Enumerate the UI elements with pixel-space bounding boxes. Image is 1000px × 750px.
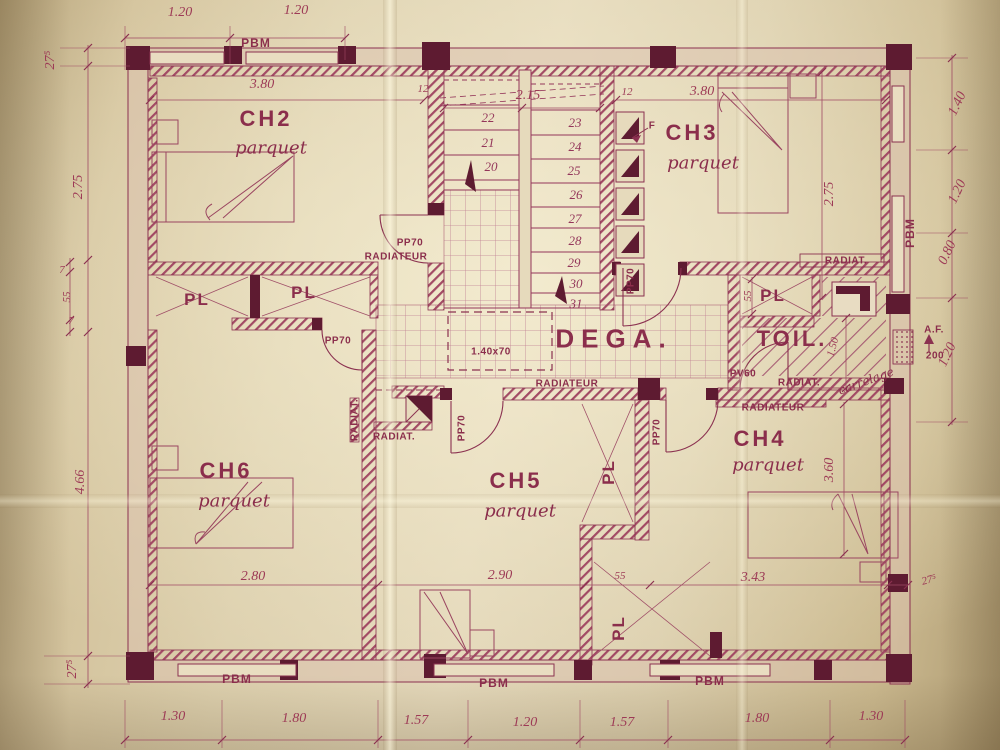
- dim-bot-130-b: 1.30: [859, 709, 884, 725]
- toil-floor-note: carrelage: [836, 364, 896, 397]
- tag-af-200: 200: [926, 351, 944, 362]
- dim-right-080: 0.80: [936, 239, 961, 268]
- room-ch4: CH4: [733, 426, 786, 452]
- dim-left-wall-275-b: 27⁵: [65, 660, 81, 679]
- stair-step-30: 30: [570, 276, 583, 292]
- dim-left-7b: 7: [68, 315, 74, 327]
- radiator-ch6-b: RADIAT.: [373, 432, 415, 443]
- room-ch4-floor: parquet: [732, 455, 804, 476]
- radiator-ch4: RADIATEUR: [742, 403, 805, 414]
- door-pp70-ch3: PP70: [626, 268, 637, 294]
- stair-step-25: 25: [568, 163, 581, 179]
- stair-step-29: 29: [568, 255, 581, 271]
- dim-ch5-290: 2.90: [488, 568, 513, 584]
- dim-ch3-380: 3.80: [690, 84, 715, 100]
- stair-step-28: 28: [569, 233, 582, 249]
- floor-plan-paper: 1.201.20PBM3.80122.15123.8027⁵2.7575574.…: [0, 0, 1000, 750]
- room-ch6-floor: parquet: [198, 491, 270, 512]
- dim-wall-275-c: 27⁵: [920, 572, 937, 587]
- stair-step-31: 31: [570, 296, 583, 312]
- dim-stair-215: 2.15: [516, 88, 541, 104]
- tag-pbm-top: PBM: [241, 36, 271, 50]
- room-ch5-floor: parquet: [484, 501, 556, 522]
- room-toil: TOIL.: [757, 326, 828, 352]
- dim-bot-180-b: 1.80: [745, 711, 770, 727]
- labels-layer: 1.201.20PBM3.80122.15123.8027⁵2.7575574.…: [0, 0, 1000, 750]
- dim-bot-180-a: 1.80: [282, 711, 307, 727]
- room-ch2: CH2: [239, 106, 292, 132]
- dim-top-120-a: 1.20: [168, 5, 193, 21]
- radiator-ch2: RADIATEUR: [365, 252, 428, 263]
- dim-bot-130-a: 1.30: [161, 709, 186, 725]
- dim-bot-120: 1.20: [513, 715, 538, 731]
- dim-left-275: 2.75: [71, 175, 87, 200]
- stair-step-26: 26: [570, 187, 583, 203]
- dim-ch2-380: 3.80: [250, 77, 275, 93]
- room-ch2-floor: parquet: [235, 138, 307, 159]
- closet-pl-bottom: PL: [609, 615, 629, 641]
- dim-ch4-360: 3.60: [822, 458, 838, 483]
- tag-pbm-right: PBM: [903, 218, 917, 248]
- dim-ch6-280: 2.80: [241, 569, 266, 585]
- closet-pl-toil: PL: [760, 286, 786, 306]
- door-pv60: PV60: [730, 369, 756, 380]
- closet-pl-mid: PL: [599, 459, 619, 485]
- door-pp70-ch2: PP70: [397, 238, 423, 249]
- dim-bot-157-a: 1.57: [404, 713, 429, 729]
- dim-ch3-275: 2.75: [822, 182, 838, 207]
- door-pp70-ch4: PP70: [652, 419, 663, 445]
- stair-step-27: 27: [569, 211, 582, 227]
- door-pp70-ch5: PP70: [457, 415, 468, 441]
- dim-12-left: 12: [418, 83, 429, 95]
- stair-step-23: 23: [569, 115, 582, 131]
- stair-step-24: 24: [569, 139, 582, 155]
- dim-left-wall-275: 27⁵: [43, 51, 59, 70]
- dim-pl-toil-55: 55: [742, 291, 754, 302]
- stair-step-21: 21: [482, 135, 495, 151]
- dim-left-55: 55: [61, 292, 73, 303]
- closet-pl-1: PL: [184, 290, 210, 310]
- radiator-ch6-a: RADIAT.: [350, 399, 361, 441]
- hatch-trap-dim: 1.40x70: [471, 347, 511, 358]
- stair-step-22: 22: [482, 110, 495, 126]
- flue-f: F: [649, 121, 656, 132]
- radiator-ch3: RADIAT.: [825, 256, 867, 267]
- dim-left-466: 4.66: [73, 470, 89, 495]
- dim-right-120-a: 1.20: [946, 178, 971, 207]
- room-ch3-floor: parquet: [667, 153, 739, 174]
- room-dega: DEGA.: [555, 324, 672, 355]
- closet-pl-2: PL: [291, 283, 317, 303]
- dim-left-7a: 7: [59, 264, 65, 276]
- radiator-dega: RADIATEUR: [536, 379, 599, 390]
- door-pp70-ch6: PP70: [325, 336, 351, 347]
- dim-pl-55: 55: [615, 570, 626, 582]
- dim-right-140: 1.40: [946, 90, 971, 119]
- radiator-toil: RADIAT.: [778, 378, 820, 389]
- room-ch3: CH3: [665, 120, 718, 146]
- tag-af: A.F.: [924, 325, 944, 336]
- stair-step-20: 20: [485, 159, 498, 175]
- room-ch5: CH5: [489, 468, 542, 494]
- dim-bot-157-b: 1.57: [610, 715, 635, 731]
- dim-ch4-343: 3.43: [741, 570, 766, 586]
- room-ch6: CH6: [199, 458, 252, 484]
- tag-pbm-bottom-1: PBM: [222, 672, 252, 686]
- dim-top-120-b: 1.20: [284, 3, 309, 19]
- dim-12-right: 12: [622, 86, 633, 98]
- tag-pbm-bottom-3: PBM: [695, 674, 725, 688]
- tag-pbm-bottom-2: PBM: [479, 676, 509, 690]
